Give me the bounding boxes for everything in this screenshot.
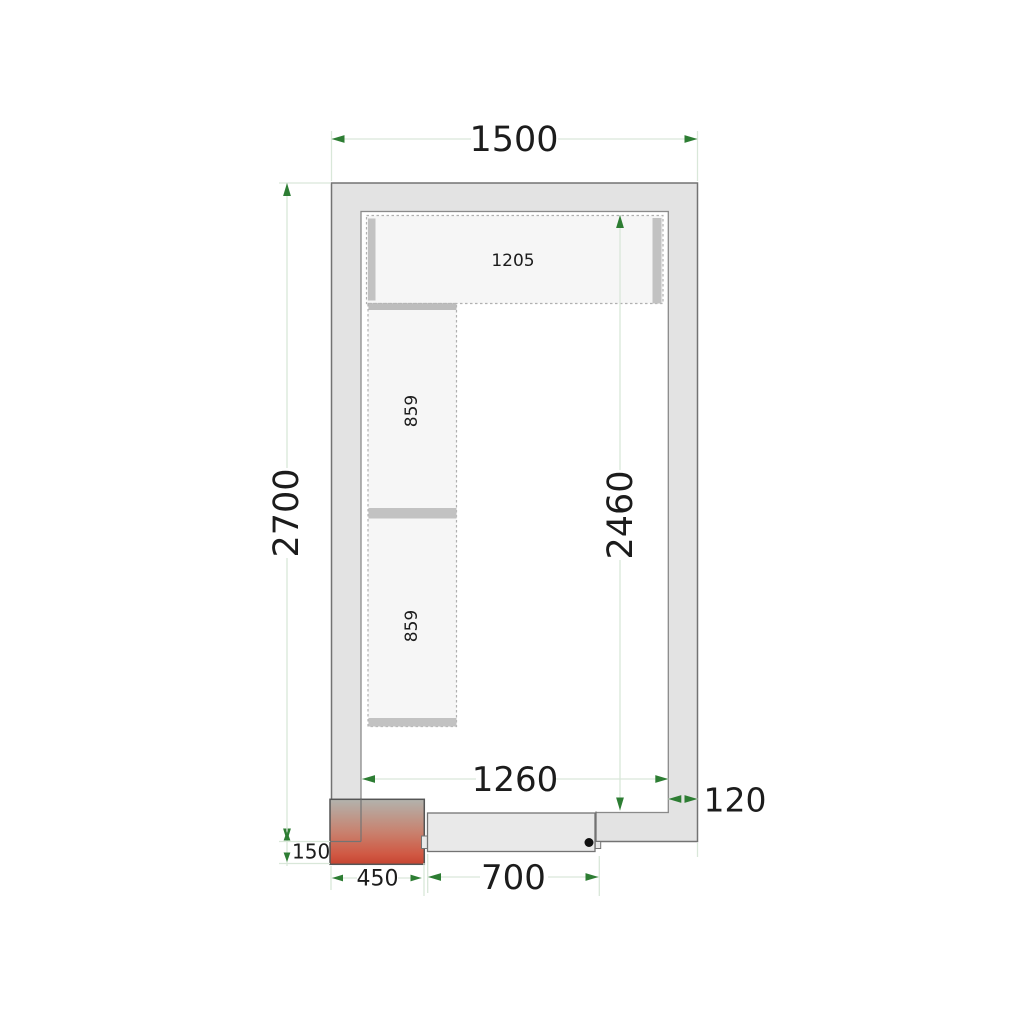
left-shelf-upper-length-label: 859	[402, 395, 422, 427]
unit-width-label: 450	[357, 867, 399, 892]
left-shelf-support-bottom	[369, 718, 457, 727]
dim-arrow-700-left	[428, 873, 441, 881]
unit-protrusion-label: 150	[292, 840, 330, 864]
wall-thickness-label: 120	[704, 781, 767, 820]
dim-arrow-1500-left	[332, 135, 345, 143]
dim-arrow-150-down	[284, 853, 291, 863]
dim-arrow-700-right	[586, 873, 599, 881]
top-shelf-support-left	[368, 219, 376, 301]
dim-arrow-1500-right	[685, 135, 698, 143]
top-shelf-length-label: 1205	[491, 251, 534, 271]
floor-plan-svg: 1205 859 859 1500 2700 2460 1260 120 700	[0, 0, 1024, 1024]
door-rail-end-right	[595, 842, 601, 849]
left-shelf-lower-length-label: 859	[402, 610, 422, 642]
door-panel	[428, 813, 596, 852]
top-shelf-support-right	[653, 218, 662, 304]
overall-depth-label: 2700	[267, 468, 307, 557]
interior-width-label: 1260	[472, 760, 559, 800]
dim-arrow-450-left	[332, 875, 343, 882]
left-shelf-support-middle	[369, 508, 457, 519]
left-shelf-support-top	[369, 304, 457, 311]
dim-arrow-450-right	[411, 875, 422, 882]
door-width-label: 700	[481, 858, 546, 898]
dim-arrow-2700-top	[283, 183, 291, 196]
interior-depth-label: 2460	[601, 470, 641, 559]
refrigeration-unit	[330, 799, 424, 864]
floor-plan-drawing: 1205 859 859 1500 2700 2460 1260 120 700	[0, 0, 1024, 1024]
door-handle-dot	[585, 838, 594, 847]
overall-width-label: 1500	[469, 120, 558, 160]
